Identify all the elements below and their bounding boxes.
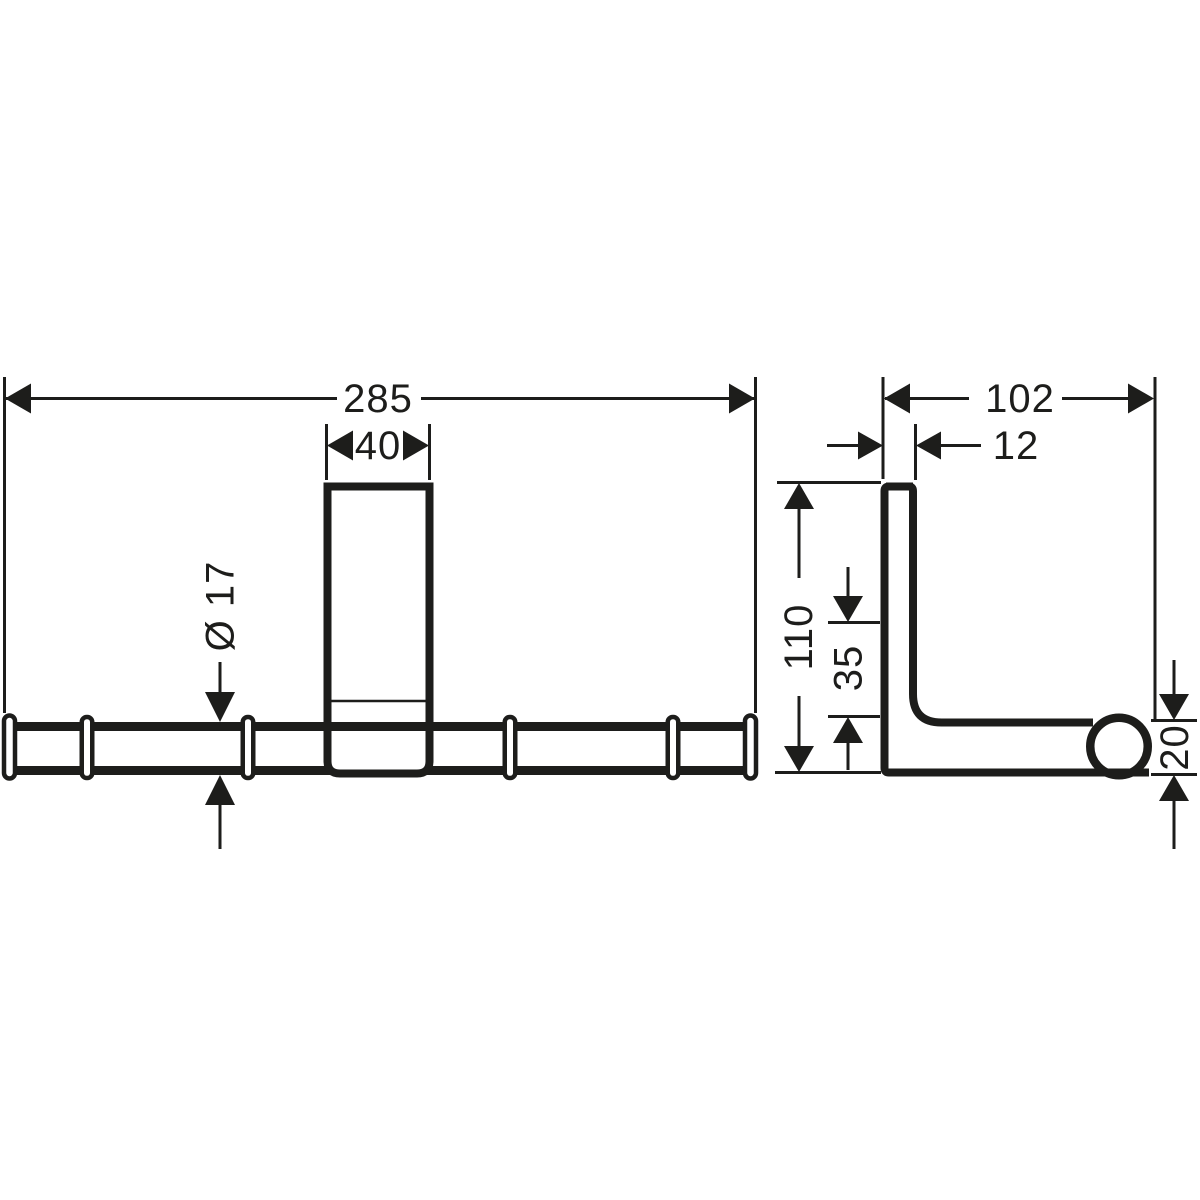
bar-joint-ring — [668, 717, 679, 778]
dim-label-bracket-width: 40 — [355, 424, 402, 468]
arrowhead-down-icon — [833, 596, 863, 622]
arrowhead-up-icon — [833, 717, 863, 743]
arrowhead-down-icon — [205, 692, 235, 722]
arrowhead-right-icon — [858, 432, 883, 460]
wall-plate-inner-contour — [886, 487, 1093, 723]
arrowhead-left-icon — [327, 431, 353, 461]
arrowhead-down-icon — [784, 746, 814, 772]
arrowhead-up-icon — [205, 775, 235, 805]
arrowhead-left-icon — [5, 384, 31, 414]
bar-end-cap-right — [745, 716, 756, 779]
bar-joint-ring — [82, 717, 93, 778]
arrowhead-left-icon — [884, 384, 910, 414]
dimension-drawing: 285 40 Ø 17 102 12 — [0, 0, 1200, 1200]
dim-label-overall-width: 285 — [343, 377, 413, 421]
arrowhead-right-icon — [729, 384, 755, 414]
arrowhead-up-icon — [784, 483, 814, 509]
dim-label-bar-end-height: 20 — [1153, 724, 1197, 771]
arrowhead-right-icon — [1128, 384, 1154, 414]
front-view: 285 40 Ø 17 — [4, 377, 756, 849]
arrowhead-right-icon — [403, 431, 429, 461]
dim-label-depth: 102 — [985, 377, 1055, 421]
arrowhead-up-icon — [1159, 775, 1189, 801]
side-view: 102 12 110 35 20 — [775, 377, 1197, 849]
arrowhead-down-icon — [1159, 694, 1189, 720]
arrowhead-left-icon — [916, 432, 941, 460]
bar-cross-section-circle — [1090, 718, 1148, 776]
dim-label-height: 110 — [777, 604, 821, 671]
dim-label-plate-thickness: 12 — [993, 424, 1040, 468]
bar-end-cap-left — [4, 716, 15, 779]
drawing-canvas: 285 40 Ø 17 102 12 — [0, 0, 1200, 1200]
dim-label-offset: 35 — [827, 645, 871, 692]
bar-joint-ring — [505, 717, 516, 778]
bar-joint-ring — [243, 717, 254, 778]
dim-label-bar-diameter: Ø 17 — [199, 561, 243, 652]
